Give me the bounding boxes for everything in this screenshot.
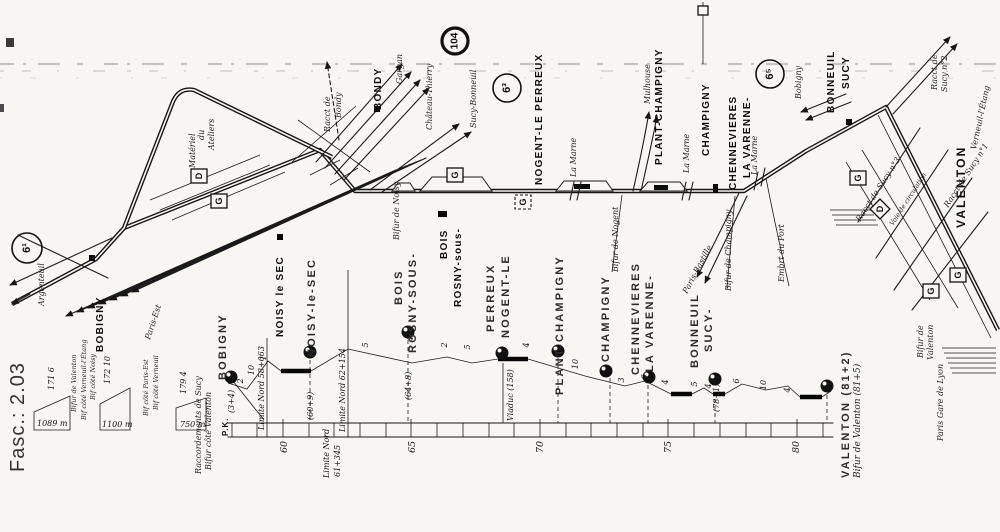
ramp-gradient: 179 4 xyxy=(179,371,188,394)
racc-sucy2-label: Racct de xyxy=(930,54,939,91)
dest-mulhouse: Mulhouse xyxy=(643,64,652,105)
station-pk-mark: (60+9) xyxy=(306,392,315,420)
limit-label: Limite Nord xyxy=(322,429,331,479)
gradient-value: 5 xyxy=(463,344,472,349)
gradient-value: 2 xyxy=(440,342,449,348)
dest-argenteuil: Argenteuil xyxy=(37,263,46,307)
map-label-sucy: BONNEUIL xyxy=(826,50,837,113)
ateliers-label: Matériel xyxy=(188,133,197,169)
racc-bondy-label: Racct de xyxy=(323,96,332,133)
ramp-gradient: 172 10 xyxy=(103,356,112,384)
profile-label-nogent: PERREUX xyxy=(485,263,497,332)
dest-verneuil: Verneuil-l'Étang xyxy=(969,85,991,151)
profile-label-noisy: NOISY-le-SEC xyxy=(306,258,318,357)
gradient-value: 4 xyxy=(783,387,792,393)
profile-label-rosny: BOIS xyxy=(393,269,405,305)
pk-value: 80 xyxy=(791,441,802,453)
ramp-length: 1089 m xyxy=(37,419,68,428)
pk-axis xyxy=(228,423,833,437)
map-label-rosny: ROSNY-sous- xyxy=(453,228,464,307)
profile-label-rosny: ROSNY-SOUS- xyxy=(407,252,419,353)
map-label-nogent: NOGENT-LE PERREUX xyxy=(534,53,545,185)
dest-gargan: Gargan xyxy=(395,54,404,84)
raccordements-title: Bifur côté Valenton xyxy=(204,392,213,471)
ramp-end-label: Bif côté Verneuil-l'Étang xyxy=(79,340,88,421)
dest-paris-est: Paris-Est xyxy=(143,303,163,342)
profile-label-valenton: VALENTON (81+2) xyxy=(840,350,852,478)
limit-label: 61+345 xyxy=(333,445,342,477)
ramp-end-label: Bif côté Verneuil xyxy=(152,355,160,411)
g-box-icon: G xyxy=(518,198,528,205)
scanned-railway-diagram-page: D G G G G G G D 6¹ 6³ 6⁵ 104 xyxy=(0,0,1000,532)
pk-value: 60 xyxy=(279,441,290,453)
gradient-value: 4 xyxy=(661,379,670,385)
plate-ref-right: 6⁵ xyxy=(764,68,776,79)
profile-label-sucy: BONNEUIL xyxy=(689,293,701,368)
profile-label-bobigny: BOBIGNY xyxy=(217,313,229,380)
racc-bondy-label: Bondy xyxy=(334,92,343,119)
profile-label-champigny: CHAMPIGNY xyxy=(600,275,612,362)
pk-axis-label: P.K. xyxy=(221,417,230,436)
gradient-value: 10 xyxy=(247,365,256,375)
station-pk-mark: (3+4) xyxy=(227,390,236,413)
voie-circulation-label: Voie de circulation xyxy=(888,171,928,227)
profile-label-la-varenne: LA VARENNE- xyxy=(644,274,656,372)
gradient-value: 5 xyxy=(690,381,699,386)
dest-sucy-bonneuil: Sucy-Bonneuil xyxy=(469,69,478,128)
gradient-profile: 60 65 70 75 80 P.K. Limite Nord 58+063 L… xyxy=(194,252,863,479)
gradient-value: 4 xyxy=(522,342,531,348)
g-box-icon: G xyxy=(853,174,863,181)
argenteuil-arrow xyxy=(12,294,30,304)
map-label-rosny: BOIS xyxy=(439,229,450,259)
fascicule-number: Fasc.: 2.03 xyxy=(7,362,29,472)
map-label-noisy: NOISY le SEC xyxy=(275,256,286,337)
profile-label-bifur-valenton: Bifur de Valenton (81+5) xyxy=(852,363,863,479)
station-droplines xyxy=(310,340,827,423)
dest-chateau-thierry: Château-Thierry xyxy=(425,63,434,130)
dest-bobigny: Bobigny xyxy=(794,65,803,100)
gradient-value: 3 xyxy=(617,377,626,382)
la-marne-label: La Marne xyxy=(569,137,578,178)
plate-ref-left: 6¹ xyxy=(21,243,33,253)
map-label-la-varenne: CHENNEVIERES xyxy=(728,95,739,190)
g-box-icon: G xyxy=(214,197,224,204)
dest-paris-bastille: Paris-Bastille xyxy=(680,243,714,295)
ramp-gradient: 171 6 xyxy=(47,367,56,390)
map-label-sucy: SUCY xyxy=(841,56,852,89)
level-sections xyxy=(281,359,822,397)
la-marne-label: La Marne xyxy=(750,135,759,176)
viaduc-mark: Viaduc (158) xyxy=(506,369,515,421)
ateliers-label: du xyxy=(197,130,206,140)
bobigny-tick xyxy=(89,255,95,261)
racc-sucy2-label: Sucy n°2 xyxy=(940,56,949,92)
bifur-valenton-pgl-label: Bifur de xyxy=(916,325,925,359)
ramp-end-label: Bifur de Valenton xyxy=(70,355,78,414)
ramp-end-label: Bif côté Paris-Est xyxy=(142,359,150,417)
profile-label-nogent: NOGENT-LE xyxy=(500,254,512,338)
pk-value: 65 xyxy=(407,441,418,453)
raccordement-profiles: 1089 m 1100 m 750 m 171 6 172 10 179 4 B… xyxy=(34,340,206,430)
plate-ref-mid: 6³ xyxy=(501,83,513,93)
ramp-length: 1100 m xyxy=(102,420,133,429)
bifur-valenton-pgl-label: Valenton xyxy=(926,325,935,360)
bondy-branches xyxy=(292,62,429,180)
sucy-tick xyxy=(846,119,852,125)
map-label-bobigny: BOBIGNY xyxy=(95,296,106,352)
d-box-icon: D xyxy=(194,172,204,179)
la-marne-label: La Marne xyxy=(682,133,691,174)
g-box-icon: G xyxy=(450,171,460,178)
gradient-value: 6 xyxy=(732,378,741,383)
bifur-nogent-label: Bifur de Nogent xyxy=(611,206,620,273)
pk-value: 75 xyxy=(663,441,674,453)
gradient-value: 10 xyxy=(571,359,580,369)
map-label-bondy: BONDY xyxy=(373,67,384,110)
station-pk-mark: (78+1) xyxy=(712,384,721,412)
pk-value: 70 xyxy=(535,441,546,453)
rosny-tick xyxy=(438,211,447,217)
embrt-port-label: Embrt du Port xyxy=(777,223,786,283)
gradient-value: 5 xyxy=(361,342,370,347)
gradient-value: 1 xyxy=(259,355,268,360)
profile-label-la-varenne: CHENNEVIERES xyxy=(630,262,642,375)
station-pk-mark: (64+8) xyxy=(404,372,413,400)
gradient-value: 10 xyxy=(759,380,768,390)
ramp-end-label: Bif côté Noisy xyxy=(89,354,97,401)
bifur-valenton-pgl-label: Paris Gare de Lyon xyxy=(936,364,945,442)
noisy-tick xyxy=(277,234,283,240)
limit-label: Limite Nord 62+154 xyxy=(338,348,347,433)
gradient-value: 2 xyxy=(236,378,245,384)
map-label-plant-champigny: PLANT-CHAMPIGNY xyxy=(654,48,665,165)
gradient-line xyxy=(228,349,831,397)
g-box-icon: G xyxy=(953,271,963,278)
g-box-icon: G xyxy=(926,287,936,294)
ramp-length: 750 m xyxy=(180,420,206,429)
bifur-noisy-label: Bifur de Noisy xyxy=(392,181,401,241)
profile-label-plant-champigny: PLANT-CHAMPIGNY xyxy=(554,255,566,395)
map-label-champigny: CHAMPIGNY xyxy=(701,83,712,156)
pk-ticks xyxy=(232,419,823,437)
bifur-champigny-label: Bifur de Champigny xyxy=(724,209,733,292)
ateliers-label: Ateliers xyxy=(207,119,216,151)
profile-label-sucy: SUCY- xyxy=(703,307,715,352)
diagram-canvas: D G G G G G G D 6¹ 6³ 6⁵ 104 xyxy=(0,0,1000,532)
d-box-icon: D xyxy=(875,205,885,212)
line-number-badge: 104 xyxy=(450,32,461,49)
bastille-branch xyxy=(697,193,747,283)
